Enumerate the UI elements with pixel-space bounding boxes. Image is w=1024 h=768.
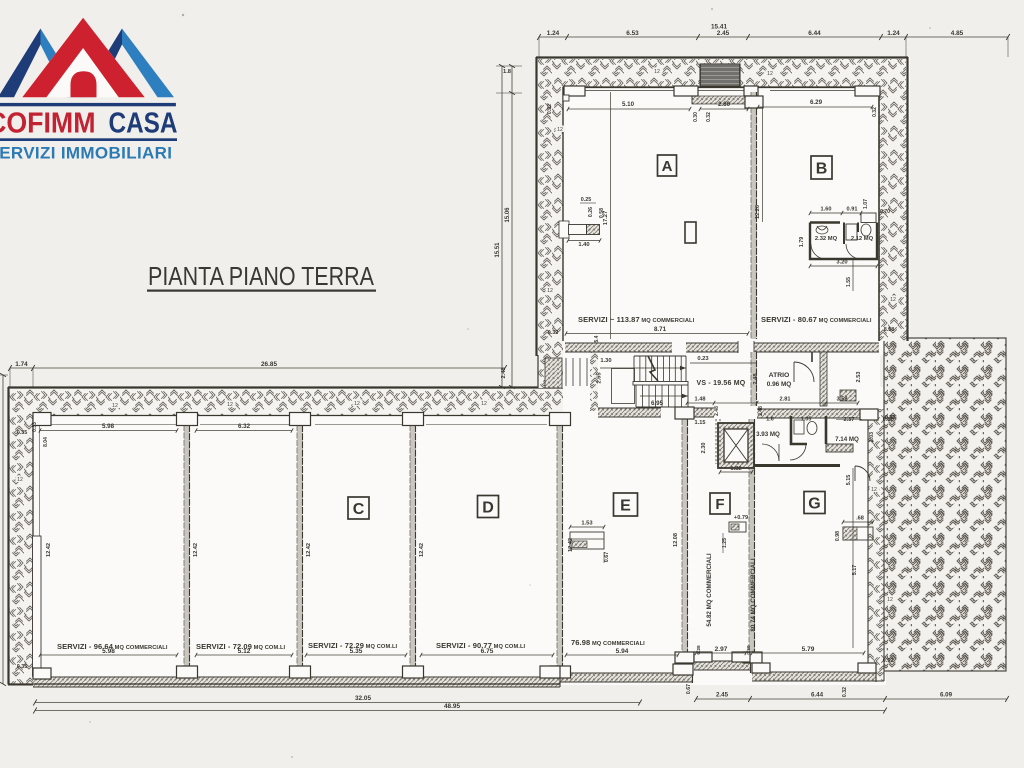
svg-text:12: 12 (557, 127, 563, 133)
svg-text:.68: .68 (856, 516, 864, 522)
svg-text:12.08: 12.08 (673, 533, 679, 547)
svg-text:12: 12 (547, 288, 553, 294)
svg-text:26.85: 26.85 (261, 361, 277, 368)
svg-text:0.35: 0.35 (17, 664, 28, 670)
svg-text:2.32 MQ: 2.32 MQ (815, 236, 838, 242)
svg-text:6.44: 6.44 (811, 692, 824, 699)
svg-text:1.40: 1.40 (578, 242, 589, 248)
svg-text:0.26: 0.26 (588, 207, 594, 217)
svg-text:6.53: 6.53 (626, 30, 639, 37)
svg-text:5.98: 5.98 (102, 423, 115, 430)
svg-text:2.48: 2.48 (714, 406, 720, 416)
svg-text:1.30: 1.30 (600, 358, 611, 364)
svg-text:12: 12 (354, 401, 360, 407)
svg-text:4.85: 4.85 (951, 30, 964, 37)
svg-text:6.09: 6.09 (940, 692, 953, 699)
svg-text:5.79: 5.79 (802, 646, 815, 653)
svg-text:0.67: 0.67 (686, 684, 692, 694)
svg-text:2.53: 2.53 (856, 372, 862, 383)
svg-text:F: F (715, 496, 724, 513)
svg-text:12: 12 (767, 71, 773, 77)
svg-text:12.26: 12.26 (755, 205, 761, 219)
svg-text:5.94: 5.94 (616, 648, 629, 655)
svg-text:8.58: 8.58 (884, 327, 895, 333)
svg-text:1.82: 1.82 (730, 466, 741, 472)
svg-text:2.45: 2.45 (716, 692, 729, 699)
svg-text:1.60: 1.60 (821, 207, 832, 213)
svg-text:0.52: 0.52 (883, 658, 894, 664)
svg-text:0.32: 0.32 (547, 104, 553, 114)
svg-text:2.30: 2.30 (701, 443, 707, 454)
svg-text:1.15: 1.15 (695, 420, 706, 426)
svg-text:6.32: 6.32 (238, 423, 251, 430)
svg-text:C: C (353, 501, 365, 518)
svg-text:ATRIO: ATRIO (769, 372, 790, 379)
svg-text:1.74: 1.74 (15, 361, 28, 368)
svg-text:2.81: 2.81 (780, 397, 791, 403)
svg-text:1.53: 1.53 (581, 521, 593, 527)
svg-text:0.52: 0.52 (885, 415, 896, 421)
svg-text:2.65: 2.65 (597, 372, 603, 384)
svg-text:0.70: 0.70 (880, 209, 890, 215)
svg-text:A: A (662, 158, 673, 175)
svg-text:5.4: 5.4 (594, 335, 600, 342)
svg-text:12.42: 12.42 (46, 543, 52, 557)
svg-text:12: 12 (481, 401, 487, 407)
svg-text:12: 12 (227, 402, 233, 408)
svg-text:12: 12 (887, 597, 893, 603)
svg-text:12: 12 (871, 487, 877, 493)
svg-text:2.45: 2.45 (717, 30, 730, 37)
svg-text:0.67: 0.67 (604, 552, 610, 563)
svg-text:0.32: 0.32 (872, 107, 878, 117)
svg-text:12.42: 12.42 (568, 538, 574, 552)
svg-text:5.10: 5.10 (622, 101, 635, 108)
svg-text:1.8: 1.8 (503, 69, 512, 75)
svg-text:CASA: CASA (109, 108, 178, 140)
svg-text:1.05: 1.05 (801, 417, 812, 423)
svg-text:0.59: 0.59 (746, 645, 752, 655)
svg-text:2.03: 2.03 (869, 432, 875, 442)
svg-text:32.05: 32.05 (355, 695, 371, 702)
svg-text:6.44: 6.44 (808, 30, 821, 37)
svg-text:17.27: 17.27 (603, 211, 609, 226)
svg-text:15.51: 15.51 (495, 242, 501, 258)
svg-text:12.42: 12.42 (419, 543, 425, 557)
svg-text:5.15: 5.15 (846, 475, 852, 486)
svg-text:12: 12 (17, 477, 23, 483)
svg-text:G: G (808, 495, 820, 512)
svg-text:15.41: 15.41 (711, 24, 727, 31)
svg-text:12.42: 12.42 (306, 543, 312, 557)
svg-text:3.93 MQ: 3.93 MQ (756, 431, 780, 438)
svg-text:2.48: 2.48 (758, 406, 764, 416)
svg-text:3.20: 3.20 (836, 260, 847, 266)
svg-text:SERVIZI IMMOBILIARI: SERVIZI IMMOBILIARI (0, 143, 172, 162)
svg-text:12: 12 (654, 69, 660, 75)
svg-text:0.32: 0.32 (842, 687, 848, 697)
svg-text:2.12 MQ: 2.12 MQ (851, 236, 874, 242)
svg-text:1.55: 1.55 (846, 277, 852, 287)
svg-text:54.82 MQ COMMERCIALI: 54.82 MQ COMMERCIALI (706, 553, 713, 627)
svg-text:0.96 MQ: 0.96 MQ (767, 381, 792, 388)
svg-text:E: E (620, 497, 631, 514)
svg-text:0.35: 0.35 (17, 430, 28, 436)
svg-text:0.32: 0.32 (706, 112, 712, 122)
svg-text:80.74 MQ COMMERCIALI: 80.74 MQ COMMERCIALI (750, 558, 757, 632)
svg-text:1.48: 1.48 (695, 397, 706, 403)
svg-text:8.04: 8.04 (43, 437, 49, 447)
svg-text:0.30: 0.30 (693, 112, 699, 122)
svg-text:12: 12 (112, 403, 118, 409)
svg-text:5.17: 5.17 (852, 565, 858, 576)
svg-text:D: D (482, 499, 494, 516)
svg-text:2.37: 2.37 (844, 417, 855, 423)
svg-text:8.71: 8.71 (654, 326, 667, 333)
svg-text:1.24: 1.24 (887, 30, 900, 37)
svg-text:0.25: 0.25 (581, 197, 592, 203)
svg-text:2.48: 2.48 (753, 373, 759, 385)
svg-text:7.14 MQ: 7.14 MQ (835, 436, 859, 443)
svg-text:6.95: 6.95 (651, 400, 664, 407)
svg-text:1.79: 1.79 (799, 237, 805, 248)
svg-text:0.32: 0.32 (548, 330, 559, 336)
svg-text:1.07: 1.07 (863, 199, 869, 209)
svg-text:3.58: 3.58 (837, 397, 848, 403)
svg-text:1.6: 1.6 (766, 417, 774, 423)
svg-text:0.91: 0.91 (847, 207, 858, 213)
svg-text:+0.79: +0.79 (734, 515, 748, 521)
svg-text:15.06: 15.06 (505, 207, 511, 223)
svg-text:COFIMM: COFIMM (0, 108, 96, 140)
svg-text:0.33: 0.33 (32, 422, 38, 432)
svg-text:VS - 19.56 MQ: VS - 19.56 MQ (697, 380, 746, 387)
svg-text:2.80: 2.80 (718, 101, 731, 108)
svg-text:0.98: 0.98 (835, 531, 841, 541)
svg-text:1.24: 1.24 (547, 30, 560, 37)
svg-text:0.28: 0.28 (696, 645, 702, 655)
svg-text:0.23: 0.23 (697, 356, 709, 362)
svg-text:B: B (816, 160, 828, 177)
svg-text:6.29: 6.29 (810, 99, 823, 106)
svg-text:PIANTA PIANO TERRA: PIANTA PIANO TERRA (148, 263, 374, 291)
svg-text:12.42: 12.42 (193, 543, 199, 557)
svg-text:2.97: 2.97 (715, 646, 728, 653)
svg-text:12: 12 (890, 297, 896, 303)
svg-text:48.95: 48.95 (444, 703, 460, 710)
